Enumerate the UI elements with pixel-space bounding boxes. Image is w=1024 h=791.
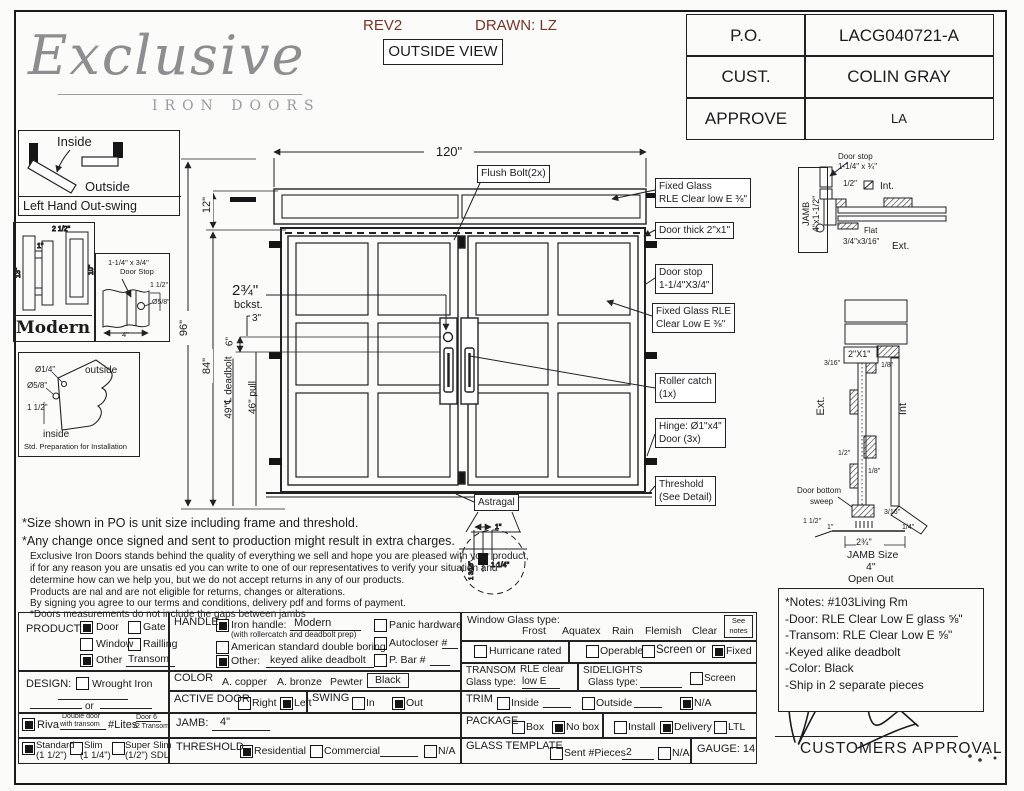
jamb-section-18: 1/8" [881,362,893,369]
jamb-section-234: 2¾" [856,537,872,547]
checkbox-trim-inside[interactable] [497,697,510,710]
callout-astragal: Astragal [474,494,519,511]
modern-dim-right: 10" [88,264,95,275]
logo-exclusive: Exclusive [28,24,306,87]
dim-12: 12" [201,188,213,222]
jamb-section-1: 1" [827,524,833,531]
jamb-section-2x1: 2"X1" [848,349,870,359]
callout-fixed-top-2: RLE Clear low E ⅜" [659,193,747,206]
package-ltl-label: LTL [728,721,745,733]
package-install-label: Install [628,721,655,733]
notes-line5: -Ship in 2 separate pieces [785,677,977,694]
commercial-blank[interactable] [380,756,418,757]
checkbox-swing-in[interactable] [352,697,365,710]
jamb-section-18b: 1/8" [868,468,880,475]
jamb-size-value: 4" [866,561,876,573]
modern-dim-left: 13" [15,267,22,278]
thickness-slim-sub: (1 1/4") [80,750,111,761]
logo-irondoors: IRON DOORS [152,98,321,114]
jamb-section-detail [815,300,927,548]
checkbox-swing-out[interactable] [392,697,405,710]
checkbox-super-slim[interactable] [112,742,125,755]
trim-outside-label: Outside [596,697,632,709]
jamb-plan-ext: Ext. [892,241,909,252]
open-out-label: Open Out [848,573,894,585]
jamb-plan-flat-dim: 3/4"x3/16" [843,237,879,246]
jamb-value[interactable]: 4" [212,716,270,731]
design-blank-line[interactable] [58,699,128,700]
product-door-label: Door [96,621,119,633]
glass-rain[interactable]: Rain [612,625,634,637]
color-label: COLOR [174,672,213,684]
logo-underline [58,94,302,95]
checkbox-commercial[interactable] [310,745,323,758]
checkbox-template-na[interactable] [658,747,671,760]
handle-iron-value[interactable]: Modern [290,617,361,631]
sidelights-glass-label: Glass type: [588,677,638,688]
riva-label: Riva [37,719,59,731]
swing-label: SWING [312,692,349,704]
sidelights-label: SIDELIGHTS [583,665,642,676]
product-other-value[interactable]: Transom [126,653,175,667]
swing-caption: Left Hand Out-swing [19,196,181,216]
jamb-label: JAMB: [176,717,208,729]
jamb-section-14: 1/4" [902,524,914,531]
swing-panel: Inside Outside Left Hand Out-swing [18,130,180,216]
approve-label-cell: APPROVE [686,97,806,140]
callout-hinge-1: Hinge: Ø1"x4" [659,420,722,433]
package-nobox-label: No box [566,721,599,733]
sidelights-screen-label: Screen [704,673,736,684]
callout-door-stop-1: Door stop [659,266,709,279]
po-value-cell[interactable]: LACG040721-A [804,14,994,57]
swing-outside-label: Outside [85,179,130,194]
jamb-section-316b: 3/16" [884,509,900,516]
checkbox-operable[interactable] [586,645,599,658]
callout-roller-2: (1x) [659,388,712,401]
trim-na-label: N/A [694,697,712,709]
transom-glass-label: Glass type: [466,677,516,688]
threshold-sketch [44,360,112,430]
approve-value-cell[interactable]: LA [804,97,994,140]
dim-pull: 46" pull [248,356,259,440]
screen-or-label: Screen or [656,644,706,656]
modern-dim-one: 1" [37,243,44,250]
callout-fixed-glass-1: Fixed Glass RLE [656,305,731,318]
checkbox-trim-outside[interactable] [582,697,595,710]
callout-threshold-1: Threshold [659,478,712,491]
jamb-plan-label-box: JAMB 4"x1-1/2" [798,167,828,253]
glass-frost[interactable]: Frost [522,625,546,637]
checkbox-pbar[interactable] [374,654,387,667]
handle-iron-sub: (with rollercatch and deadbolt prep) [231,630,356,639]
notes-title: *Notes: #103Living Rm [785,594,977,611]
swing-inside-label: Inside [57,134,92,149]
gauge-label: GAUGE: 14 [697,743,755,755]
fixed-label: Fixed [726,645,752,657]
riva-lites-value1[interactable]: Door 6 [136,714,161,722]
callout-roller-1: Roller catch [659,375,712,388]
checkbox-delivery[interactable] [660,721,673,734]
transom-glass-value1[interactable]: RLE clear [520,664,564,675]
sent-pieces-label: Sent #Pieces [564,747,626,759]
jamb-size-label: JAMB Size [847,549,898,561]
notes-line3: -Keyed alike deadbolt [785,644,977,661]
pbar-blank[interactable] [430,665,450,666]
checkbox-panic[interactable] [374,619,387,632]
jamb-section-12: 1/2" [838,450,850,457]
product-other-label: Other [96,654,122,666]
see-notes-line1: See [725,616,752,626]
checkbox-gate[interactable] [128,621,141,634]
callout-threshold-2: (See Detail) [659,491,712,504]
notes-line4: -Color: Black [785,660,977,677]
jamb-plan-stop2: 1-1/4" x ¾" [838,162,877,171]
checkbox-trim-na[interactable] [680,697,693,710]
jamb-section-112: 1 1/2" [803,518,821,525]
checkbox-install[interactable] [614,721,627,734]
swing-in-label: In [366,697,375,709]
callout-fixed-glass-2: Clear Low E ⅜" [656,318,731,331]
notes-box: *Notes: #103Living Rm -Door: RLE Clear L… [778,588,984,712]
trim-inside-blank[interactable] [543,707,571,708]
product-label: PRODUCT: [26,623,82,635]
astragal-detail: 1" 1 1/4" 1 3/16" [459,524,527,594]
thickness-super-sub: (1/2") SDL [125,750,169,761]
jamb-plan-stop1: Door stop [838,152,873,161]
modern-dim-top: 2 1/2" [52,226,71,233]
notes-line2: -Transom: RLE Clear Low E ⅝" [785,627,977,644]
jamb-section-sweep1: Door bottom [797,486,841,495]
checkbox-sidelights-screen[interactable] [690,672,703,685]
jamb-section-316: 3/16" [824,360,840,367]
checkbox-fixed[interactable] [712,645,725,658]
dim-96: 96" [178,311,190,345]
checkbox-hurricane[interactable] [474,645,487,658]
jamb-plan-detail [816,162,946,232]
hurricane-label: Hurricane rated [489,645,561,657]
package-delivery-label: Delivery [674,721,712,733]
glass-aquatex[interactable]: Aquatex [562,625,601,637]
autocloser-blank[interactable] [442,648,458,649]
astragal-dim-2: 1 1/4" [491,562,510,569]
color-black-selected[interactable]: Black [367,673,409,688]
customers-approval-label: CUSTOMERS APPROVAL [800,740,1003,758]
handle-pbar-label: P. Bar # [389,654,426,666]
template-na-label: N/A [672,747,690,759]
handle-autocloser-label: Autocloser # [389,637,447,649]
handle-label: HANDLE [174,616,219,628]
checkbox-screen[interactable] [642,645,655,658]
active-door-label: ACTIVE DOOR [174,693,250,705]
color-copper[interactable]: A. copper [222,676,267,688]
checkbox-active-left[interactable] [280,697,293,710]
checkbox-riva[interactable] [22,718,35,731]
glass-clear[interactable]: Clear [692,625,717,637]
checkbox-handle-other[interactable] [216,655,229,668]
door-elevation [230,189,672,497]
riva-note1[interactable]: Double door [62,713,100,720]
dim-120: 120" [424,144,474,159]
checkbox-nobox[interactable] [552,721,565,734]
callout-hinge-2: Door (3x) [659,433,722,446]
modern-handle-sketch: 2 1/2" 1" 13" 10" [15,226,95,310]
active-left-label: Left [294,697,312,709]
dim-3: 3" [250,313,263,324]
handle-other-value[interactable]: keyed alike deadbolt [266,654,374,668]
riva-note2[interactable]: with transom [60,721,106,730]
color-bronze[interactable]: A. bronze [277,676,322,688]
transom-label: TRANSOM [466,665,516,676]
jamb-section-sweep2: sweep [810,497,833,506]
threshold-na-label: N/A [438,745,456,757]
thickness-standard-sub: (1 1/2") [36,750,67,761]
dimension-lines [181,152,646,509]
package-box-label: Box [526,721,544,733]
scanned-sheet: 1" 1 1/4" 1 3/16" 2 1/2" 1" 13" 10" [0,0,1024,791]
jamb-plan-half: 1/2" [843,179,857,188]
checkbox-standard[interactable] [22,742,35,755]
callout-door-thick: Door thick 2"x1" [655,222,734,239]
riva-lites-value2[interactable]: /2 Transom [134,723,169,730]
threshold-form-label: THRESHOLD [176,741,244,753]
sent-pieces-value[interactable]: 2 [622,746,654,760]
glass-flemish[interactable]: Flemish [645,625,682,637]
glass-template-label: GLASS TEMPLATE [466,740,563,752]
product-railing-label: Railling [143,638,177,650]
checkbox-threshold-na[interactable] [424,745,437,758]
trim-inside-label: Inside [511,697,539,709]
cust-label-cell: CUST. [686,55,806,99]
callout-door-stop-2: 1-1/4"X3/4" [659,279,709,292]
transom-glass-value2[interactable]: low E [522,676,560,689]
threshold-commercial-label: Commercial [324,745,380,757]
handle-american-label: American standard double boring [231,641,386,653]
handle-other-label: Other: [231,655,260,667]
dim-84: 84" [201,349,213,383]
callout-flush-bolt: Flush Bolt(2x) [477,165,550,183]
dim-deadbolt: 49"℄ deadbolt [224,336,235,440]
checkbox-product-other[interactable] [80,654,93,667]
astragal-dim-1: 1" [495,524,502,531]
jamb-section-int: Int [897,396,909,422]
po-label-cell: P.O. [686,14,806,57]
sidelights-blank[interactable] [640,687,682,688]
notes-line1: -Door: RLE Clear Low E glass ⅝" [785,611,977,628]
checkbox-ltl[interactable] [714,721,727,734]
color-pewter[interactable]: Pewter [330,676,363,688]
design-or-label: or [85,701,94,712]
design-label: DESIGN: [26,678,71,690]
trim-outside-blank[interactable] [634,707,662,708]
see-notes-line2: notes [725,626,752,636]
jamb-plan-flat: Flat [864,226,877,235]
jamb-section-ext: Ext. [815,391,827,421]
design-wrought-label: Wrought Iron [92,678,153,690]
po-table: P.O. LACG040721-A CUST. COLIN GRAY APPRO… [686,14,992,138]
active-right-label: Right [252,697,277,709]
checkbox-wrought-iron[interactable] [76,677,89,690]
doorstop-sketch [103,279,160,333]
riva-lites-label: #Lites [108,719,137,731]
handle-panic-label: Panic hardware [389,619,462,631]
threshold-residential-label: Residential [254,745,306,757]
swing-out-label: Out [406,697,423,709]
checkbox-window[interactable] [80,638,93,651]
operable-label: Operable [600,645,643,657]
approval-signature-line[interactable] [775,736,958,737]
dim-backset: 2¾" [230,282,260,299]
package-label: PACKAGE [466,715,518,727]
see-notes-badge[interactable]: See notes [724,615,753,638]
checkbox-american-boring[interactable] [216,641,229,654]
trim-label: TRIM [466,693,493,705]
jamb-plan-size: 4"x1-1/2" [812,174,822,254]
cust-value-cell[interactable]: COLIN GRAY [804,55,994,99]
product-gate-label: Gate [143,621,166,633]
product-window-label: Window [96,638,133,650]
or-line-left [30,708,82,709]
astragal-dim-3: 1 3/16" [469,561,475,580]
jamb-plan-int: Int. [880,181,894,192]
or-line-right [100,708,152,709]
callout-fixed-top-1: Fixed Glass [659,180,747,193]
dim-backset-label: bckst. [232,299,265,311]
